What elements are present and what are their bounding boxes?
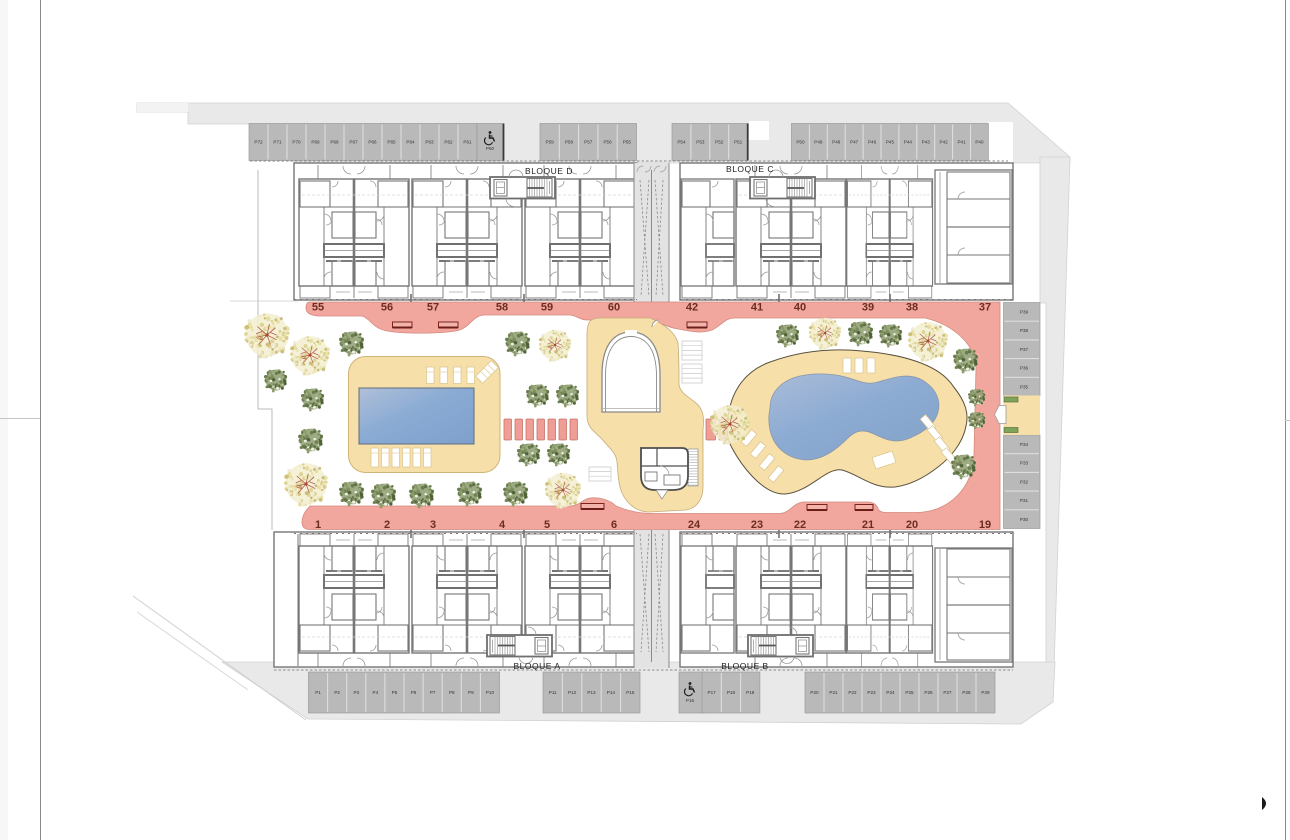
svg-text:P32: P32 <box>1020 479 1029 484</box>
svg-text:P1: P1 <box>315 690 321 695</box>
svg-text:55: 55 <box>312 302 324 314</box>
svg-text:22: 22 <box>794 519 806 531</box>
svg-text:P72: P72 <box>254 140 263 145</box>
svg-text:P58: P58 <box>565 140 574 145</box>
svg-text:P28: P28 <box>962 690 971 695</box>
svg-text:3: 3 <box>430 519 436 531</box>
svg-text:P18: P18 <box>727 690 736 695</box>
svg-text:BLOQUE A: BLOQUE A <box>514 661 561 671</box>
svg-text:BLOQUE D: BLOQUE D <box>525 166 573 176</box>
svg-text:BLOQUE B: BLOQUE B <box>721 661 768 671</box>
svg-text:BLOQUE C: BLOQUE C <box>726 164 774 174</box>
svg-text:P66: P66 <box>368 140 377 145</box>
svg-text:P35: P35 <box>1020 384 1029 389</box>
svg-text:P46: P46 <box>868 140 877 145</box>
svg-text:P14: P14 <box>607 690 616 695</box>
svg-text:19: 19 <box>979 519 991 531</box>
svg-text:P56: P56 <box>603 140 612 145</box>
svg-text:P49: P49 <box>814 140 823 145</box>
svg-text:P7: P7 <box>430 690 436 695</box>
svg-text:38: 38 <box>906 302 918 314</box>
svg-text:57: 57 <box>427 302 439 314</box>
svg-text:6: 6 <box>611 519 617 531</box>
svg-text:P29: P29 <box>981 690 990 695</box>
svg-text:P65: P65 <box>387 140 396 145</box>
svg-text:P48: P48 <box>832 140 841 145</box>
svg-text:56: 56 <box>381 302 393 314</box>
svg-text:40: 40 <box>794 302 806 314</box>
svg-text:P36: P36 <box>1020 366 1029 371</box>
svg-text:P15: P15 <box>626 690 635 695</box>
svg-text:P39: P39 <box>1020 309 1029 314</box>
svg-text:P60: P60 <box>486 146 495 151</box>
svg-text:P31: P31 <box>1020 498 1029 503</box>
svg-text:P8: P8 <box>449 690 455 695</box>
svg-text:P55: P55 <box>623 140 632 145</box>
svg-text:P70: P70 <box>292 140 301 145</box>
svg-text:P19: P19 <box>746 690 755 695</box>
svg-text:42: 42 <box>686 302 698 314</box>
svg-text:P68: P68 <box>330 140 339 145</box>
svg-text:58: 58 <box>496 302 508 314</box>
svg-text:P71: P71 <box>273 140 282 145</box>
svg-text:P47: P47 <box>850 140 859 145</box>
svg-text:P3: P3 <box>353 690 359 695</box>
svg-text:P61: P61 <box>463 140 472 145</box>
svg-text:P23: P23 <box>867 690 876 695</box>
svg-text:37: 37 <box>979 302 991 314</box>
svg-text:P12: P12 <box>568 690 577 695</box>
svg-text:P25: P25 <box>905 690 914 695</box>
svg-text:P38: P38 <box>1020 328 1029 333</box>
svg-text:5: 5 <box>544 519 550 531</box>
svg-text:P24: P24 <box>886 690 895 695</box>
svg-text:P17: P17 <box>708 690 717 695</box>
svg-text:P33: P33 <box>1020 461 1029 466</box>
svg-text:P50: P50 <box>796 140 805 145</box>
svg-text:P30: P30 <box>1020 517 1029 522</box>
svg-text:P64: P64 <box>406 140 415 145</box>
svg-text:P45: P45 <box>886 140 895 145</box>
svg-text:P40: P40 <box>975 140 984 145</box>
svg-text:60: 60 <box>608 302 620 314</box>
svg-text:P42: P42 <box>940 140 949 145</box>
svg-text:P67: P67 <box>349 140 358 145</box>
svg-text:P43: P43 <box>922 140 931 145</box>
svg-text:P26: P26 <box>924 690 933 695</box>
svg-text:P41: P41 <box>957 140 966 145</box>
svg-text:P34: P34 <box>1020 442 1029 447</box>
svg-text:39: 39 <box>862 302 874 314</box>
svg-text:41: 41 <box>751 302 763 314</box>
svg-text:20: 20 <box>906 519 918 531</box>
svg-text:1: 1 <box>315 519 321 531</box>
svg-text:P62: P62 <box>444 140 453 145</box>
svg-text:P16: P16 <box>686 698 695 703</box>
svg-text:P52: P52 <box>715 140 724 145</box>
svg-text:P37: P37 <box>1020 347 1029 352</box>
svg-text:P22: P22 <box>848 690 857 695</box>
svg-text:59: 59 <box>541 302 553 314</box>
svg-text:P11: P11 <box>549 690 557 695</box>
svg-text:P69: P69 <box>311 140 320 145</box>
svg-text:P63: P63 <box>425 140 434 145</box>
svg-text:P54: P54 <box>677 140 686 145</box>
svg-text:P4: P4 <box>373 690 379 695</box>
svg-text:21: 21 <box>862 519 874 531</box>
svg-text:P51: P51 <box>734 140 743 145</box>
svg-text:P13: P13 <box>587 690 596 695</box>
svg-text:4: 4 <box>499 519 506 531</box>
svg-text:P2: P2 <box>334 690 340 695</box>
svg-text:P53: P53 <box>696 140 705 145</box>
svg-text:24: 24 <box>688 519 701 531</box>
svg-text:P10: P10 <box>486 690 495 695</box>
svg-text:P27: P27 <box>943 690 952 695</box>
svg-text:P9: P9 <box>468 690 474 695</box>
svg-text:P20: P20 <box>810 690 819 695</box>
svg-text:P59: P59 <box>546 140 555 145</box>
svg-text:2: 2 <box>384 519 390 531</box>
svg-text:P21: P21 <box>829 690 838 695</box>
svg-text:P6: P6 <box>411 690 417 695</box>
svg-text:23: 23 <box>751 519 763 531</box>
svg-text:P57: P57 <box>584 140 593 145</box>
svg-text:P5: P5 <box>392 690 398 695</box>
svg-text:P44: P44 <box>904 140 913 145</box>
